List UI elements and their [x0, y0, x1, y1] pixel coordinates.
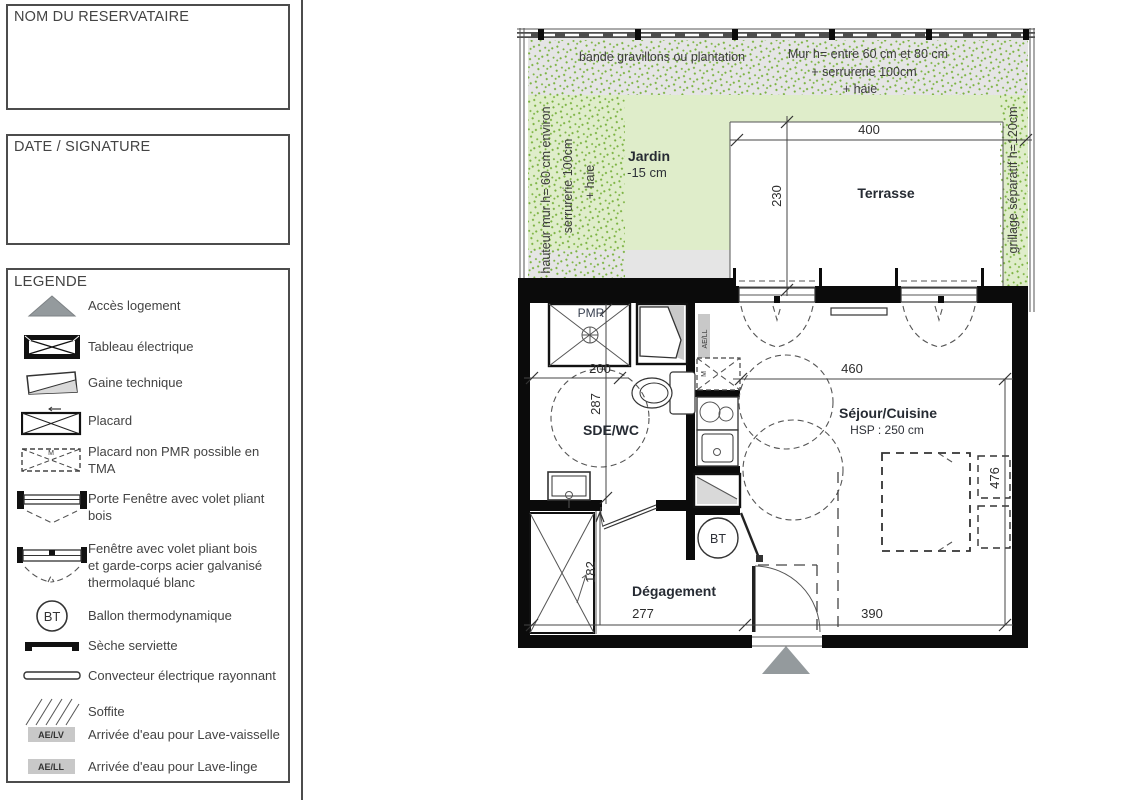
kitchen-sink	[697, 430, 738, 466]
dim-390: 390	[861, 606, 883, 621]
fence-note-right: grillage séparatif h=120cm	[1006, 107, 1020, 254]
entrance-triangle	[762, 646, 810, 674]
drawing-sheet: NOM DU RESERVATAIRE DATE / SIGNATURE LEG…	[0, 0, 1124, 800]
wall-note-top-2: + serrurerie 100cm	[811, 65, 916, 79]
room-label-jardin: Jardin	[628, 148, 670, 164]
dim-287: 287	[588, 393, 603, 415]
hedge-speckle-top	[528, 40, 1028, 95]
dim-182: 182	[583, 561, 598, 583]
ae-ll-label: AE/LL	[702, 329, 709, 348]
garden-area	[528, 38, 1028, 310]
entrance-door-leaf	[752, 566, 756, 632]
wall-note-left-3: + haie	[583, 165, 597, 199]
sejour-ceiling-height: HSP : 250 cm	[850, 423, 924, 437]
gravel-note: bande gravillons ou plantation	[579, 50, 745, 64]
svg-text:M: M	[701, 371, 708, 377]
jardin-level: -15 cm	[627, 165, 667, 180]
dim-460: 460	[841, 361, 863, 376]
floor-plan: AE/LL M	[0, 0, 1124, 800]
dim-277: 277	[632, 606, 654, 621]
closet-non-pmr: M	[697, 358, 740, 390]
dim-200: 200	[589, 361, 611, 376]
wall-note-left-2: serrurerie 100cm	[561, 139, 575, 233]
room-label-degagement: Dégagement	[632, 583, 716, 599]
wall-note-left-1: hauteur mur h= 60 cm environ	[539, 106, 553, 273]
convector	[831, 308, 887, 315]
dim-230: 230	[769, 185, 784, 207]
pmr-label: PMR	[578, 306, 605, 320]
svg-text:BT: BT	[710, 532, 726, 546]
wall-note-top-1: Mur h= entre 60 cm et 80 cm	[788, 47, 948, 61]
dim-476: 476	[987, 467, 1002, 489]
apartment-floor	[530, 303, 1012, 635]
cooktop	[697, 397, 738, 430]
room-label-sejour: Séjour/Cuisine	[839, 405, 937, 421]
technical-duct	[637, 304, 687, 364]
room-label-terrasse: Terrasse	[857, 185, 915, 201]
wall-note-top-3: + haie	[843, 82, 877, 96]
room-label-sde-wc: SDE/WC	[583, 422, 639, 438]
dim-400: 400	[858, 122, 880, 137]
